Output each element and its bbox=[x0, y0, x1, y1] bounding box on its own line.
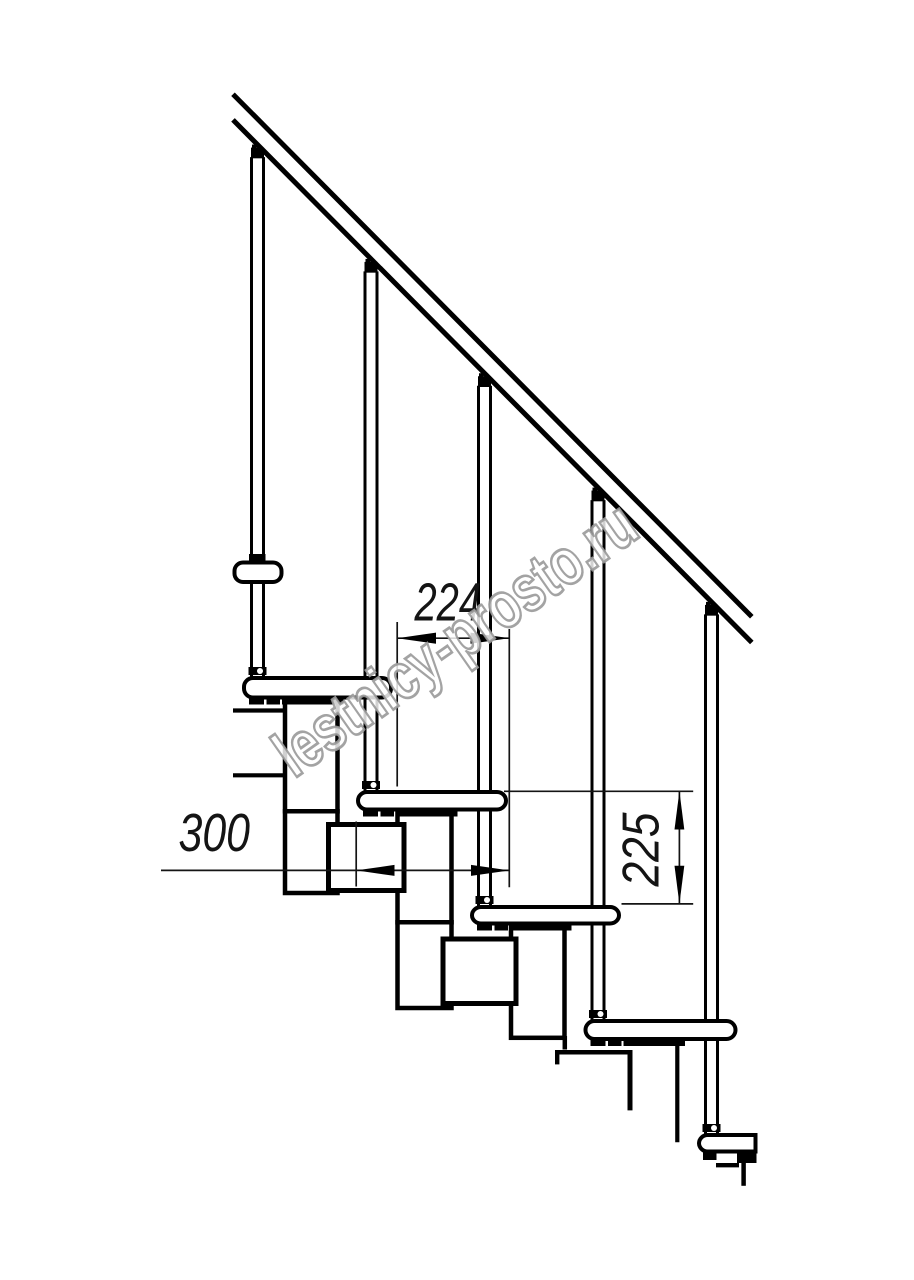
svg-text:300: 300 bbox=[179, 803, 251, 863]
svg-text:225: 225 bbox=[613, 812, 671, 888]
